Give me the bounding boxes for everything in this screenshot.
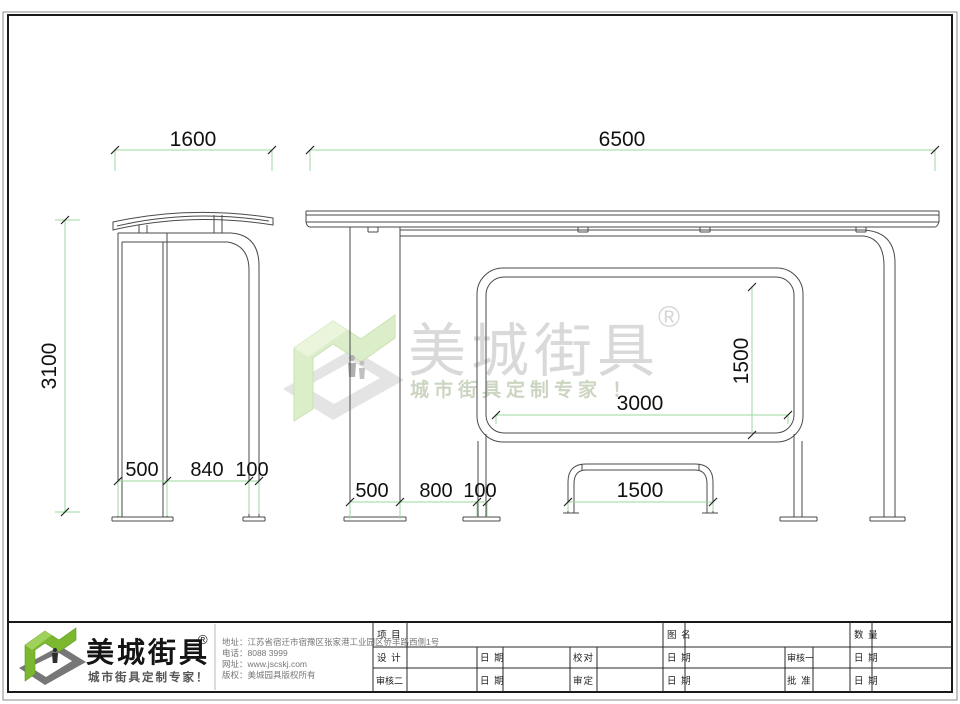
dim-text-front-base-0: 500 — [355, 480, 388, 502]
company-logo — [19, 628, 86, 685]
table-label-drawing-name: 图 名 — [667, 629, 692, 641]
dim-text-front-width: 6500 — [599, 128, 646, 151]
table-label-date-6: 日 期 — [854, 676, 879, 687]
company-address: 地址：江苏省宿迁市宿豫区张家港工业园区侨丰路西侧1号 — [222, 637, 439, 647]
company-phone: 电话：8088 3999 — [222, 648, 288, 658]
ad-panel-legs — [478, 434, 802, 517]
table-label-date-1: 日 期 — [480, 653, 505, 664]
drawing-sheet: 美城街具 ® 城市街具定制专家 ！ 1600 3100 500 840 100 — [0, 0, 960, 704]
dim-text-side-base-0: 500 — [125, 459, 158, 481]
table-label-proofread: 校对 — [573, 652, 594, 664]
dim-line-1600 — [115, 150, 272, 171]
company-copyright: 版权：美城园具版权所有 — [222, 670, 316, 680]
table-label-date-4: 日 期 — [480, 676, 505, 687]
table-label-design: 设 计 — [377, 652, 402, 664]
dim-line-bench — [568, 502, 713, 511]
side-base-plates — [112, 517, 265, 521]
company-website: 网址：www.jscskj.com — [222, 659, 307, 669]
title-block: 美城街具 ® 城市街具定制专家！ 地址：江苏省宿迁市宿豫区张家港工业园区侨丰路西… — [8, 622, 952, 692]
company-brand-text: 美城街具 — [86, 636, 210, 668]
watermark-person2-icon — [360, 361, 365, 366]
company-slogan-text: 城市街具定制专家！ — [88, 670, 210, 684]
watermark-person2-body — [359, 368, 365, 379]
side-view-dimensions: 1600 3100 500 840 100 — [38, 128, 276, 516]
dim-text-side-base-2: 100 — [235, 459, 268, 481]
dim-line-3000 — [496, 415, 788, 424]
dim-text-side-height: 3100 — [38, 343, 61, 390]
side-roof-stubs — [139, 215, 222, 233]
table-label-approve: 批 准 — [787, 675, 812, 687]
table-label-reviewer1: 审核一 — [787, 652, 814, 663]
watermark-registered-mark: ® — [658, 301, 680, 334]
dim-text-front-base-1: 800 — [419, 480, 452, 502]
table-label-quantity: 数 量 — [854, 629, 879, 641]
front-roof — [306, 211, 939, 227]
table-label-date-5: 日 期 — [667, 676, 692, 687]
dim-text-panel-width: 3000 — [617, 392, 664, 415]
table-label-date-2: 日 期 — [667, 653, 692, 664]
cad-canvas: 美城街具 ® 城市街具定制专家 ！ 1600 3100 500 840 100 — [0, 0, 960, 704]
table-label-date-3: 日 期 — [854, 653, 879, 664]
dim-text-side-base-1: 840 — [190, 459, 223, 481]
logo-person-icon — [53, 648, 57, 652]
watermark-brand-text: 美城街具 — [408, 319, 660, 384]
watermark-slogan-text: 城市街具定制专家 ！ — [410, 378, 636, 401]
ad-panel-leg-base-plates — [463, 517, 817, 521]
table-label-reviewer2: 审核二 — [376, 675, 403, 686]
dim-text-bench-width: 1500 — [617, 479, 664, 502]
dim-text-front-base-2: 100 — [463, 480, 496, 502]
table-label-project: 项 目 — [377, 630, 402, 641]
dim-line-front-base — [350, 502, 487, 519]
table-label-verify: 审定 — [573, 675, 594, 687]
watermark-person-body — [348, 363, 356, 377]
dim-line-6500 — [310, 150, 935, 171]
side-top-rail — [118, 233, 231, 242]
front-right-base-plate — [870, 517, 905, 521]
logo-person-body — [52, 653, 58, 663]
dim-line-side-base — [118, 481, 259, 516]
company-registered-mark: ® — [198, 632, 208, 647]
dim-text-panel-height: 1500 — [730, 338, 753, 385]
dim-text-side-width: 1600 — [170, 128, 217, 151]
side-roof — [113, 212, 273, 230]
